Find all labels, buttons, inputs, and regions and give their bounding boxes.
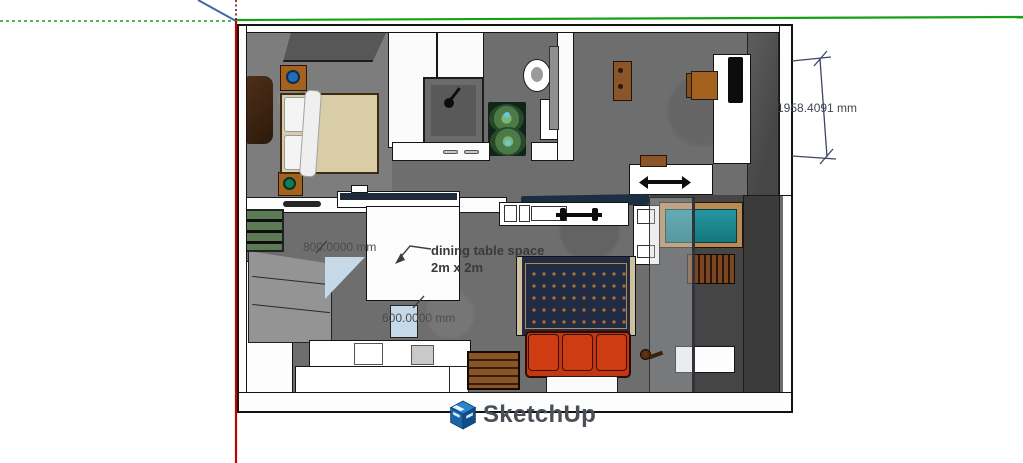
sketchup-watermark: SketchUp	[449, 400, 596, 430]
dumbbell-plate	[560, 208, 566, 221]
dimension-label-600mm[interactable]: 600.0000 mm	[382, 311, 455, 325]
island-countertop	[340, 193, 457, 200]
kitchen-counter[interactable]	[248, 251, 332, 343]
headboard-panel[interactable]	[246, 76, 273, 144]
note-line-1: dining table space	[431, 242, 544, 259]
island-cabinet	[351, 185, 368, 193]
dining-space-note[interactable]: dining table space 2m x 2m	[431, 242, 544, 276]
dimension-label-right-wall[interactable]: 1958.4091 mm	[777, 101, 857, 115]
wood-box[interactable]	[640, 155, 667, 167]
bathroom-cabinet[interactable]	[437, 31, 484, 78]
wall-pillar[interactable]	[549, 46, 559, 130]
green-axis	[234, 17, 1023, 20]
kitchen-counter[interactable]	[295, 366, 465, 393]
coat-rack[interactable]	[613, 61, 632, 101]
note-line-2: 2m x 2m	[431, 259, 544, 276]
glass-partition[interactable]	[649, 197, 693, 402]
lamp-teal[interactable]	[283, 177, 296, 190]
sofa-cushion	[562, 334, 593, 371]
wall-west[interactable]	[237, 24, 247, 413]
dumbbell-plate	[592, 208, 598, 221]
sketchup-wordmark: SketchUp	[483, 401, 596, 429]
wood-crate-table[interactable]	[467, 351, 520, 390]
wall-north[interactable]	[237, 24, 793, 33]
dimension-label-800mm[interactable]: 800.0000 mm	[303, 240, 376, 254]
sketchup-viewport[interactable]: 800.0000 mm 600.0000 mm 1958.4091 mm din…	[0, 0, 1023, 463]
cabinet-handle	[464, 150, 479, 154]
rack-peg	[618, 84, 623, 89]
storage-box	[519, 205, 530, 222]
storage-box	[504, 205, 517, 222]
sofa-cushion	[596, 334, 627, 371]
door-threshold	[283, 201, 321, 207]
wardrobe[interactable]	[283, 31, 387, 62]
sketchup-logo-icon	[449, 400, 477, 430]
balcony-wall[interactable]	[743, 195, 780, 400]
toilet-seat	[531, 67, 543, 82]
monitor[interactable]	[728, 57, 743, 103]
lamp-blue[interactable]	[286, 70, 300, 84]
plant-flower	[504, 112, 510, 118]
appliance	[354, 343, 383, 365]
blue-axis	[198, 0, 236, 21]
desk-chair[interactable]	[691, 71, 718, 100]
bathroom-wall-segment[interactable]	[557, 31, 574, 161]
plant-flower	[505, 140, 511, 146]
glass-frame	[693, 197, 695, 402]
kitchen-counter[interactable]	[309, 340, 471, 367]
dark-partition-wall[interactable]	[747, 29, 779, 197]
rack-peg	[618, 68, 623, 73]
shower-drain[interactable]	[444, 98, 454, 108]
sofa-cushion	[528, 334, 559, 371]
barbell-icon	[646, 180, 684, 184]
appliance	[411, 345, 434, 365]
cabinet-handle	[443, 150, 458, 154]
